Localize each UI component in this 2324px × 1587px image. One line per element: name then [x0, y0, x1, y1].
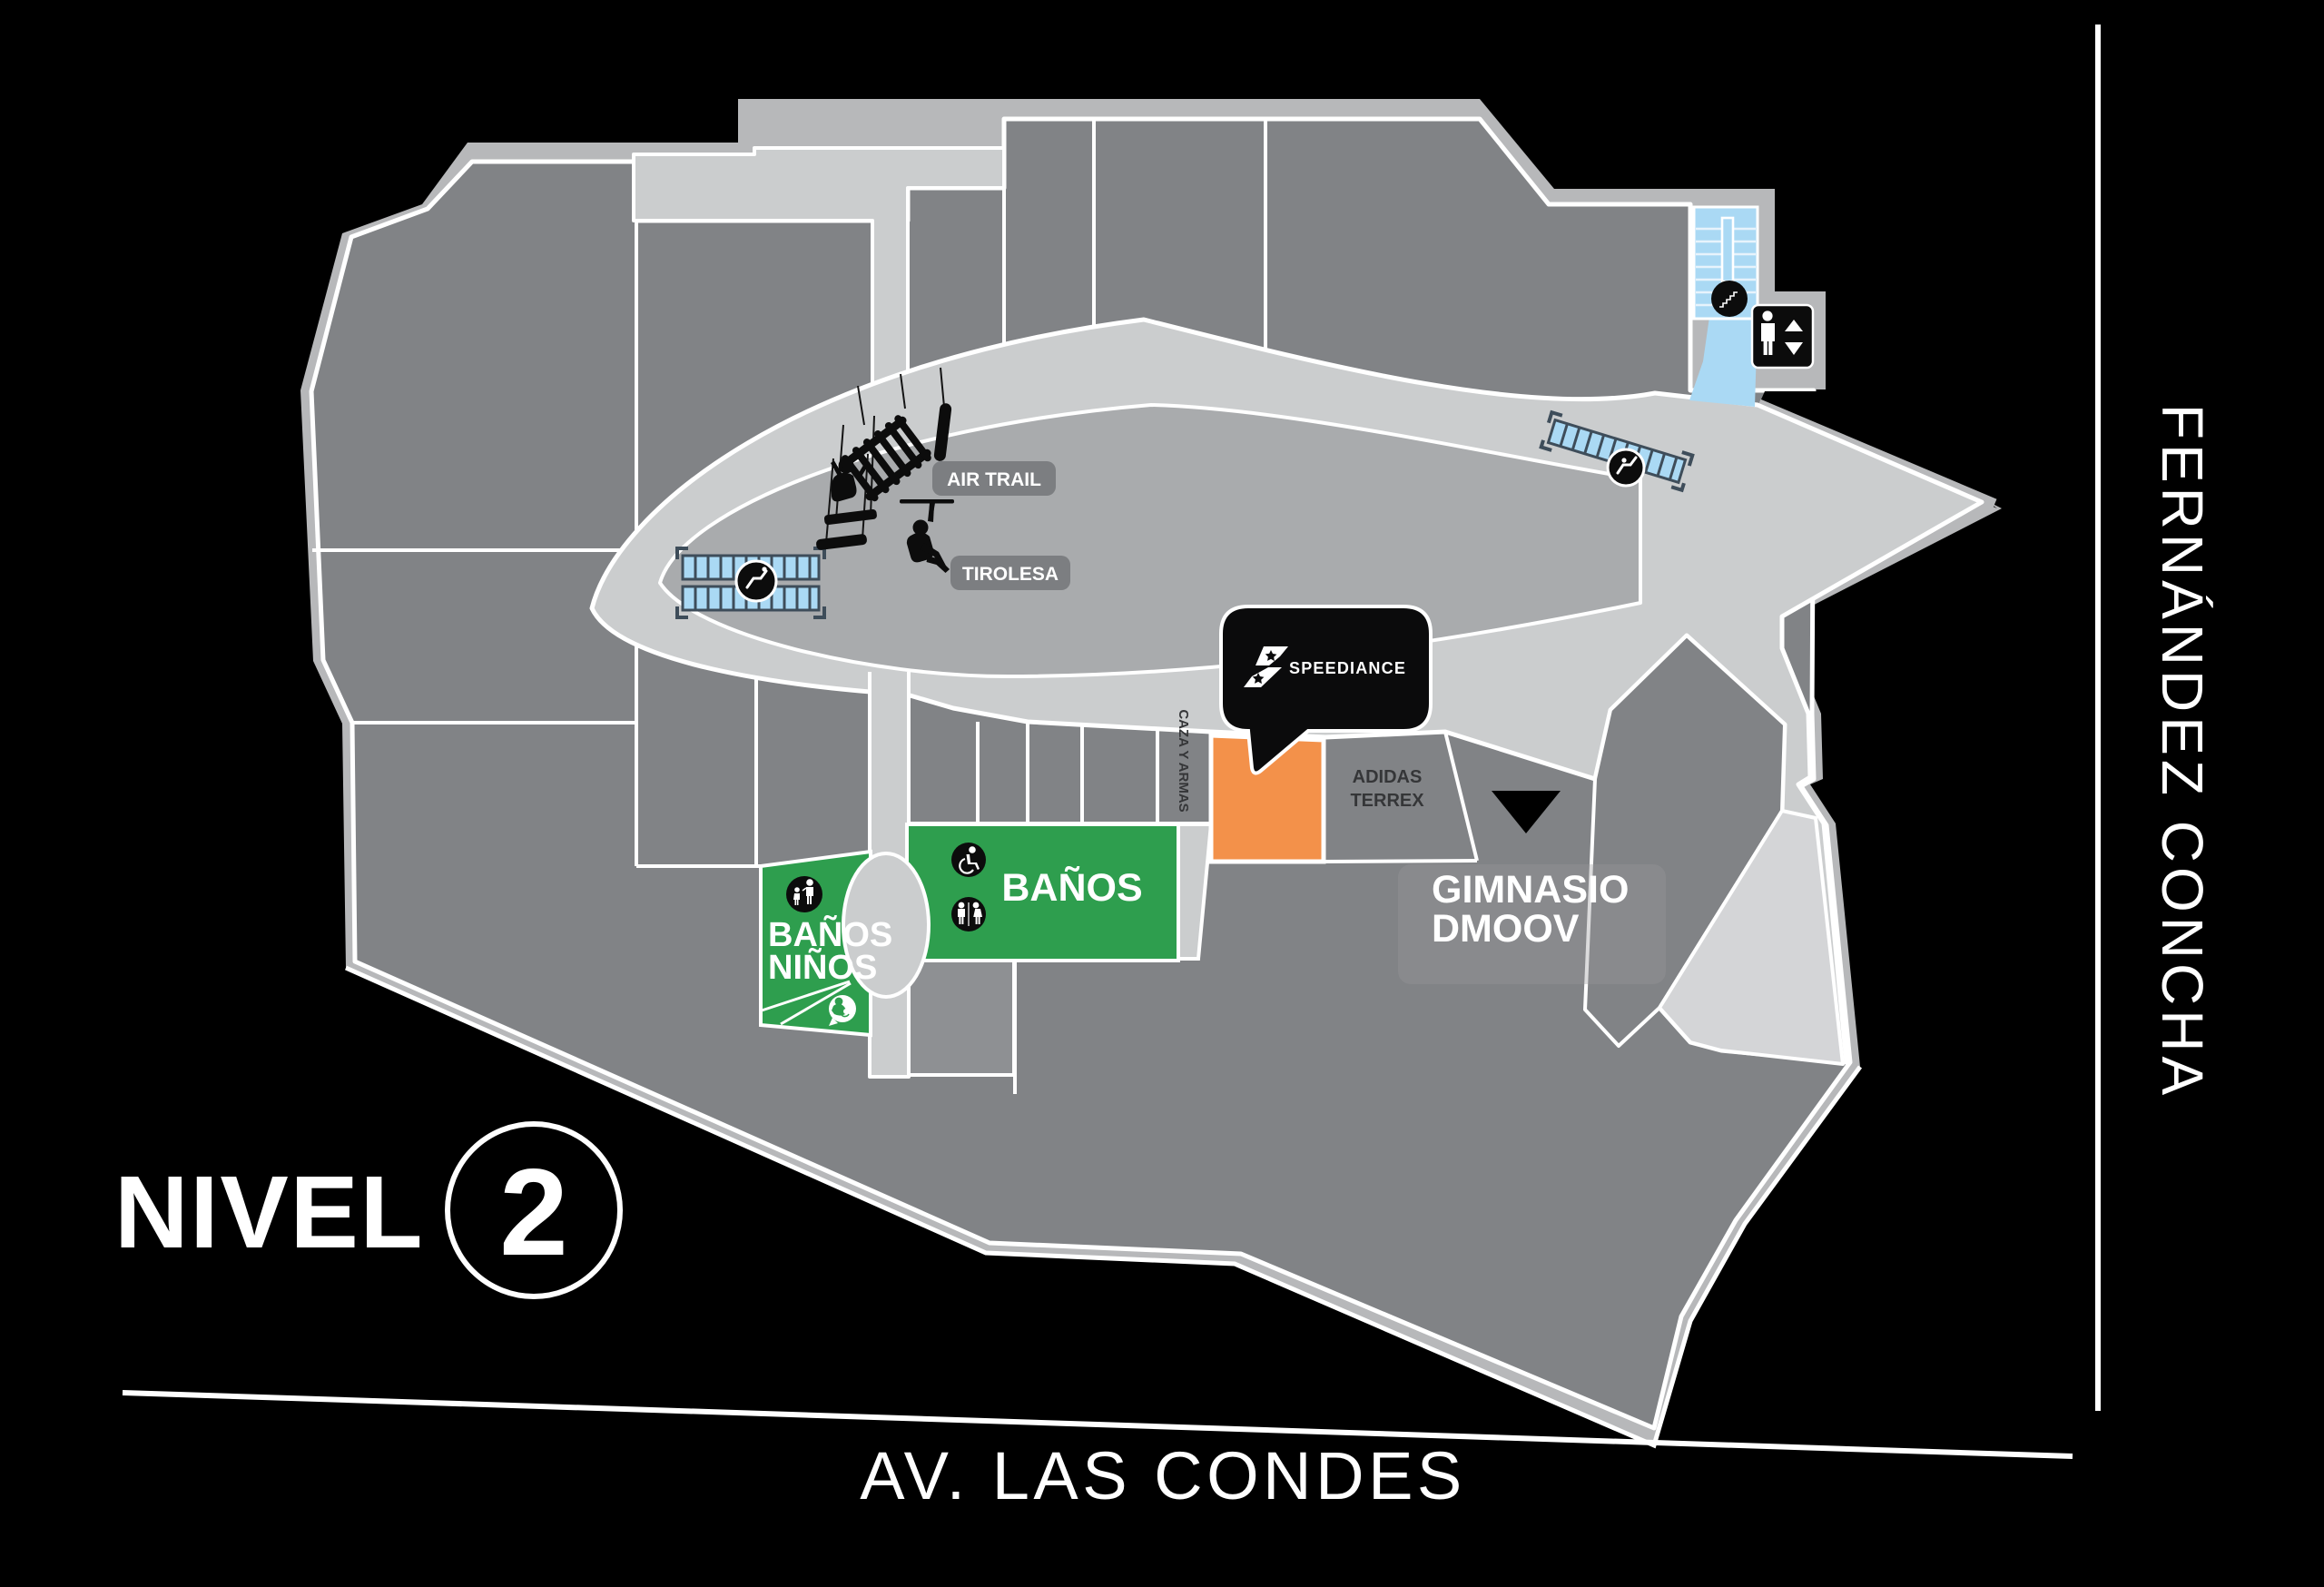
svg-text:SPEEDIANCE: SPEEDIANCE	[1289, 659, 1406, 677]
svg-text:AV. LAS CONDES: AV. LAS CONDES	[860, 1438, 1466, 1513]
svg-text:FERNÁNDEZ CONCHA: FERNÁNDEZ CONCHA	[2150, 404, 2215, 1099]
svg-text:NIÑOS: NIÑOS	[768, 947, 877, 987]
svg-text:NIVEL: NIVEL	[114, 1155, 424, 1269]
svg-text:AIR TRAIL: AIR TRAIL	[947, 469, 1041, 490]
svg-text:CAZA Y ARMAS: CAZA Y ARMAS	[1176, 709, 1191, 812]
svg-text:BAÑOS: BAÑOS	[1001, 866, 1142, 910]
svg-text:2: 2	[499, 1143, 568, 1281]
svg-text:ADIDAS: ADIDAS	[1353, 767, 1423, 787]
svg-text:GIMNASIO: GIMNASIO	[1432, 868, 1629, 912]
svg-text:TERREX: TERREX	[1350, 791, 1424, 811]
svg-text:DMOOV: DMOOV	[1432, 907, 1580, 951]
svg-text:TIROLESA: TIROLESA	[962, 564, 1059, 585]
